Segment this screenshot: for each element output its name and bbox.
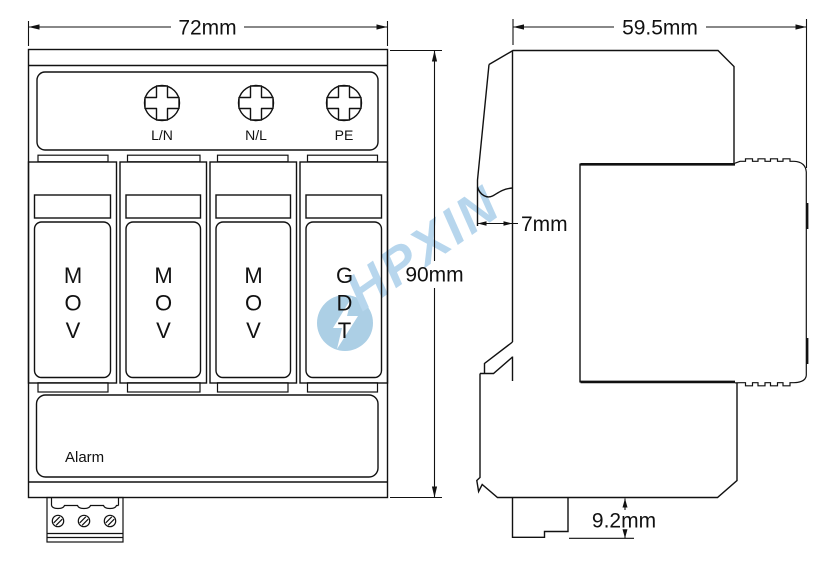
module-label-mov-3: MOV bbox=[242, 263, 264, 346]
module-label-mov-2: MOV bbox=[152, 263, 174, 346]
module-window bbox=[35, 195, 111, 218]
arrow-right-icon bbox=[796, 24, 807, 29]
alarm-screw-2 bbox=[78, 515, 89, 526]
lip-dim-label: 7mm bbox=[521, 213, 568, 236]
arrow-up-icon bbox=[623, 499, 628, 508]
module-side-profile bbox=[580, 159, 807, 386]
technical-drawing-canvas: HPXIN bbox=[0, 0, 822, 564]
module-window bbox=[216, 195, 291, 218]
alarm-label: Alarm bbox=[65, 449, 104, 466]
base-profile bbox=[477, 51, 737, 498]
side-view bbox=[477, 19, 807, 538]
foot-protrusion bbox=[513, 498, 569, 538]
arrow-down-icon bbox=[432, 487, 437, 498]
terminal-screw-nl bbox=[239, 86, 274, 121]
grip-ribs-top bbox=[735, 159, 806, 172]
module-label-mov-1: MOV bbox=[62, 263, 84, 346]
front-width-label: 72mm bbox=[178, 17, 236, 40]
arrow-up-icon bbox=[432, 51, 437, 62]
module-bottom-tabs bbox=[38, 383, 378, 392]
arrow-right-icon bbox=[377, 24, 388, 29]
hatched-screw-icon bbox=[106, 517, 114, 525]
module-top-tabs bbox=[38, 155, 378, 162]
hatched-screw-icon bbox=[80, 517, 88, 525]
alarm-screw-1 bbox=[52, 515, 63, 526]
side-width-label: 59.5mm bbox=[622, 17, 698, 40]
grip-ribs-bottom bbox=[735, 376, 806, 386]
terminal-label-pe: PE bbox=[335, 127, 354, 143]
module-window bbox=[306, 195, 382, 218]
din-rail-hook bbox=[480, 342, 513, 374]
alarm-screw-3 bbox=[104, 515, 115, 526]
front-height-label: 90mm bbox=[405, 264, 463, 287]
alarm-terminal-block bbox=[47, 498, 123, 543]
foot-dim-label: 9.2mm bbox=[592, 510, 656, 533]
terminal-area bbox=[37, 72, 378, 150]
terminal-labels: L/N N/L PE bbox=[151, 127, 353, 143]
side-width-dimension bbox=[513, 19, 807, 168]
arrow-left-icon bbox=[513, 24, 524, 29]
terminal-screw-ln bbox=[145, 86, 180, 121]
module-label-gdt: GDT bbox=[333, 263, 355, 346]
terminal-label-ln: L/N bbox=[151, 127, 173, 143]
arrow-left-icon bbox=[29, 24, 40, 29]
module-window bbox=[126, 195, 201, 218]
hatched-screw-icon bbox=[54, 517, 62, 525]
terminal-label-nl: N/L bbox=[245, 127, 267, 143]
terminal-screw-pe bbox=[327, 86, 362, 121]
drawing-svg: HPXIN bbox=[0, 0, 822, 564]
